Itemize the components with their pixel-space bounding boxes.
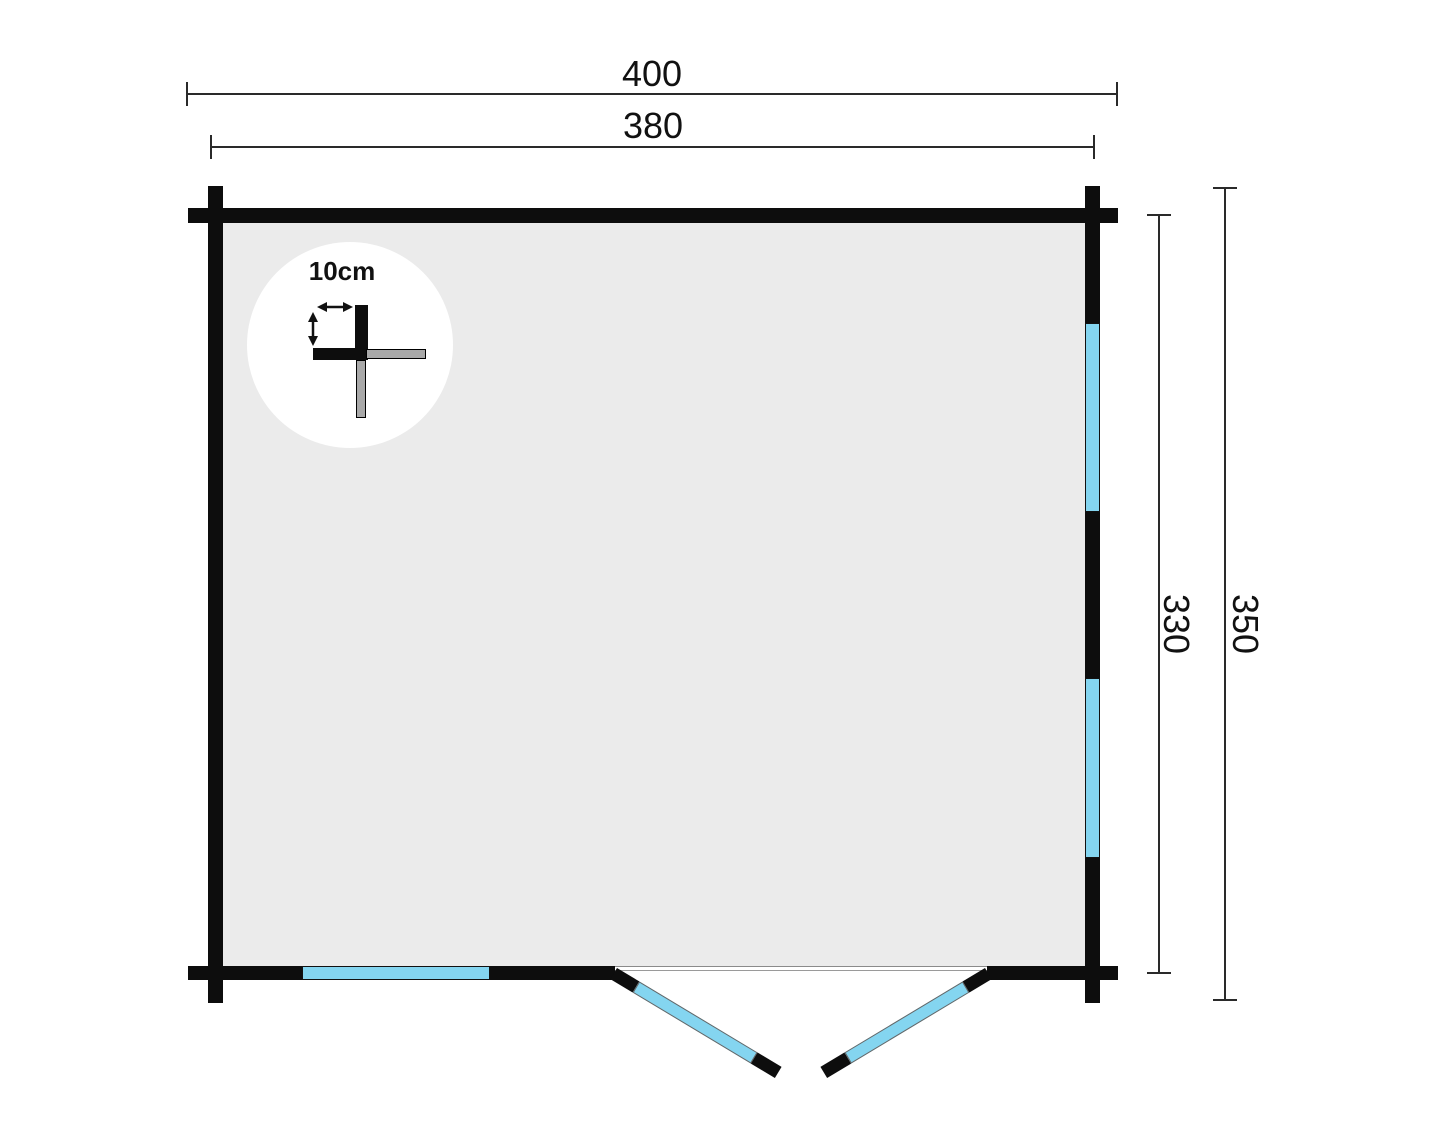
- wall-left: [208, 186, 223, 1003]
- dimension-tick-right: [1116, 82, 1118, 106]
- wall-top: [188, 208, 1118, 223]
- floor-plan-canvas: 400 380 330 350 10cm: [0, 0, 1449, 1125]
- dimension-line-inner-width: [211, 146, 1095, 148]
- door-panel: [844, 981, 969, 1063]
- door-leaf-left: [610, 968, 781, 1078]
- dimension-line-outer-width: [187, 93, 1117, 95]
- window-front: [302, 966, 490, 980]
- door-opening-threshold: [615, 966, 987, 971]
- dimension-tick-right: [1093, 135, 1095, 159]
- corner-detail-circle: 10cm: [247, 242, 453, 448]
- door-hinge-cap: [963, 968, 992, 993]
- dimension-tick-bottom: [1147, 972, 1171, 974]
- dimension-tick-top: [1147, 214, 1171, 216]
- wall-right: [1085, 186, 1100, 1003]
- window-right-upper: [1085, 323, 1100, 512]
- measure-arrows-icon: [247, 242, 453, 448]
- dimension-tick-bottom: [1213, 999, 1237, 1001]
- door-leaf-right: [820, 968, 991, 1078]
- window-right-lower: [1085, 678, 1100, 858]
- dimension-tick-left: [186, 82, 188, 106]
- door-panel: [633, 981, 758, 1063]
- wall-bottom-left-segment: [188, 966, 302, 980]
- dimension-tick-left: [210, 135, 212, 159]
- door-edge-cap: [751, 1052, 782, 1078]
- wall-bottom-right-segment: [987, 966, 1118, 980]
- dimension-label-inner-depth: 330: [1158, 594, 1194, 654]
- dimension-label-outer-depth: 350: [1227, 594, 1263, 654]
- dimension-label-outer-width: 400: [187, 56, 1117, 92]
- dimension-label-inner-width: 380: [211, 108, 1095, 144]
- dimension-tick-top: [1213, 187, 1237, 189]
- wall-bottom-middle-segment: [490, 966, 615, 980]
